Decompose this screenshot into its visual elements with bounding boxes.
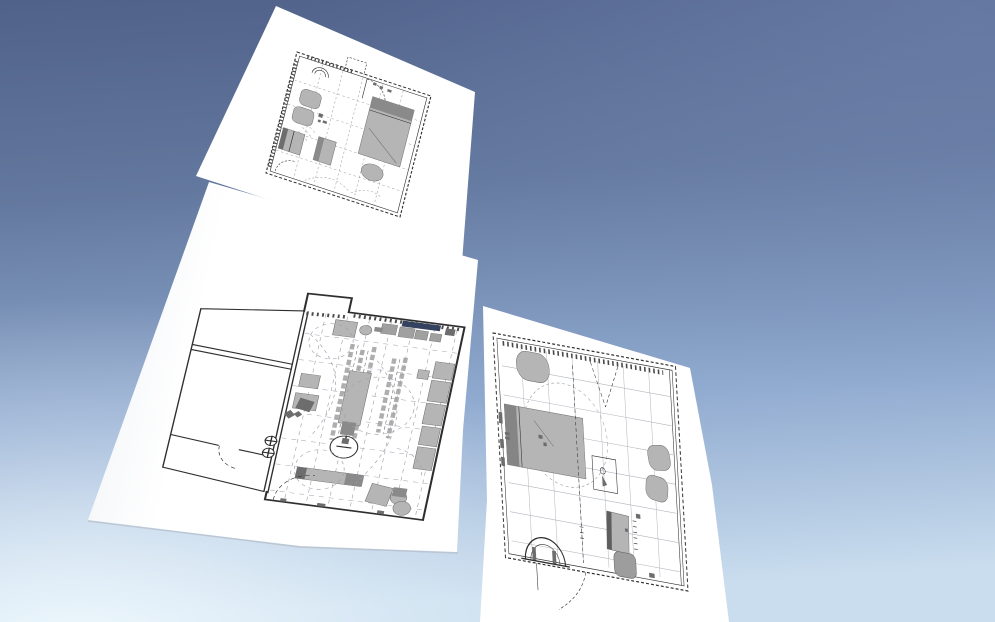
3d-scene-viewport: bedroom floor plan (upper sheet) <box>0 0 995 622</box>
desk <box>605 511 631 555</box>
island-table <box>332 320 357 338</box>
scene-canvas: bedroom floor plan (upper sheet) <box>0 0 995 622</box>
